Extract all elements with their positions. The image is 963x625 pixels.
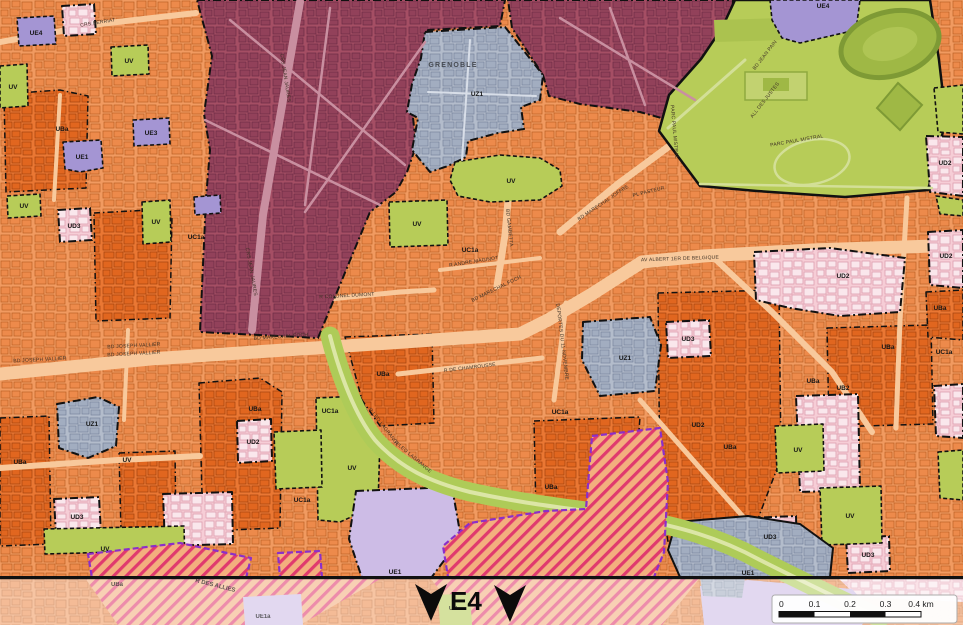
zone-label-uz1: UZ1: [619, 355, 632, 362]
zone-label-uv: UV: [347, 465, 357, 472]
sheet-label: E4: [450, 586, 482, 616]
scale-tick-label: 0.2: [844, 599, 856, 609]
zone-label-ue1: UE1: [76, 154, 89, 161]
zone-label-ue1: UE1: [742, 570, 755, 577]
zone-label-ud3: UD3: [67, 223, 80, 230]
zone-label-uv: UV: [124, 58, 134, 65]
zone-label-uv: UV: [845, 513, 855, 520]
zone-label-ud3: UD3: [861, 552, 874, 559]
zone-label-ud2: UD2: [939, 253, 952, 260]
zone-label-ud2: UD2: [938, 160, 951, 167]
zone-label-uv: UV: [151, 219, 161, 226]
zone-label-uc1a: UC1a: [462, 247, 479, 254]
zone-label-ud3: UD3: [763, 534, 776, 541]
zone-label-uz1: UZ1: [86, 421, 99, 428]
zone-label-ud2: UD2: [246, 439, 259, 446]
zone-uv: [934, 85, 963, 134]
zone-label-uc1a: UC1a: [322, 408, 339, 415]
zone-ud: [934, 384, 963, 438]
scale-tick-label: 0.3: [880, 599, 892, 609]
strip-label: UBa: [111, 582, 124, 588]
zone-label-uv: UV: [100, 546, 110, 553]
zone-label-ud3: UD3: [70, 514, 83, 521]
sheet-divider-line: [0, 576, 963, 579]
zone-label-ud3: UD3: [681, 336, 694, 343]
zone-ue1: [194, 195, 221, 215]
zone-uv: [936, 196, 963, 216]
zone-uba: [926, 290, 963, 340]
zone-label-uba: UBa: [13, 459, 26, 466]
zone-label-uba: UBa: [723, 444, 736, 451]
scale-tick-label: 0.1: [809, 599, 821, 609]
zone-label-uba: UBa: [933, 305, 946, 312]
zone-uv: [938, 450, 963, 500]
zone-label-uv: UV: [506, 178, 516, 185]
zone-label-ub2: UB2: [836, 385, 849, 392]
zone-label-uc1a: UC1a: [936, 349, 953, 356]
zone-label-uba: UBa: [248, 406, 261, 413]
hatch-uba-hatch: [278, 551, 322, 578]
zone-label-uv: UV: [19, 203, 29, 210]
scale-bar-segment: [850, 612, 886, 618]
scale-tick-label: 0.4 km: [908, 599, 934, 609]
zone-label-ue3: UE3: [145, 130, 158, 137]
zone-label-ue4: UE4: [30, 30, 43, 37]
zone-ud: [62, 4, 96, 36]
zone-uv: [274, 430, 322, 489]
zone-label-uc1a: UC1a: [188, 234, 205, 241]
zoning-map[interactable]: UBaR DES ALLIESUE1aUV UE4UVUVUBaUE3UE1UD…: [0, 0, 963, 625]
zone-label-uba: UBa: [376, 371, 389, 378]
zone-label-ue1: UE1: [389, 569, 402, 576]
zone-label-uc1a: UC1a: [294, 497, 311, 504]
zone-uba: [0, 416, 51, 546]
zone-label-uv: UV: [412, 221, 422, 228]
zone-label-uz1: UZ1: [471, 91, 484, 98]
zone-label-ud2: UD2: [691, 422, 704, 429]
zone-label-uv: UV: [8, 84, 18, 91]
strip-label: UE1a: [255, 614, 271, 620]
zone-label-uba: UBa: [881, 344, 894, 351]
scale-bar-segment: [779, 612, 815, 618]
scale-tick-label: 0: [779, 599, 784, 609]
zone-label-uba: UBa: [544, 484, 557, 491]
zone-label-uv: UV: [122, 457, 132, 464]
zone-label-uv: UV: [793, 447, 803, 454]
zone-label-ud2: UD2: [836, 273, 849, 280]
city-label: GRENOBLE: [428, 62, 477, 69]
zone-label-ue4: UE4: [817, 3, 830, 10]
scale-bar: 00.10.20.30.4 km: [772, 595, 957, 623]
zone-label-uba: UBa: [806, 378, 819, 385]
map-viewport: UBaR DES ALLIESUE1aUV UE4UVUVUBaUE3UE1UD…: [0, 0, 963, 625]
zone-label-uc1a: UC1a: [552, 409, 569, 416]
zone-label-uba: UBa: [55, 126, 68, 133]
